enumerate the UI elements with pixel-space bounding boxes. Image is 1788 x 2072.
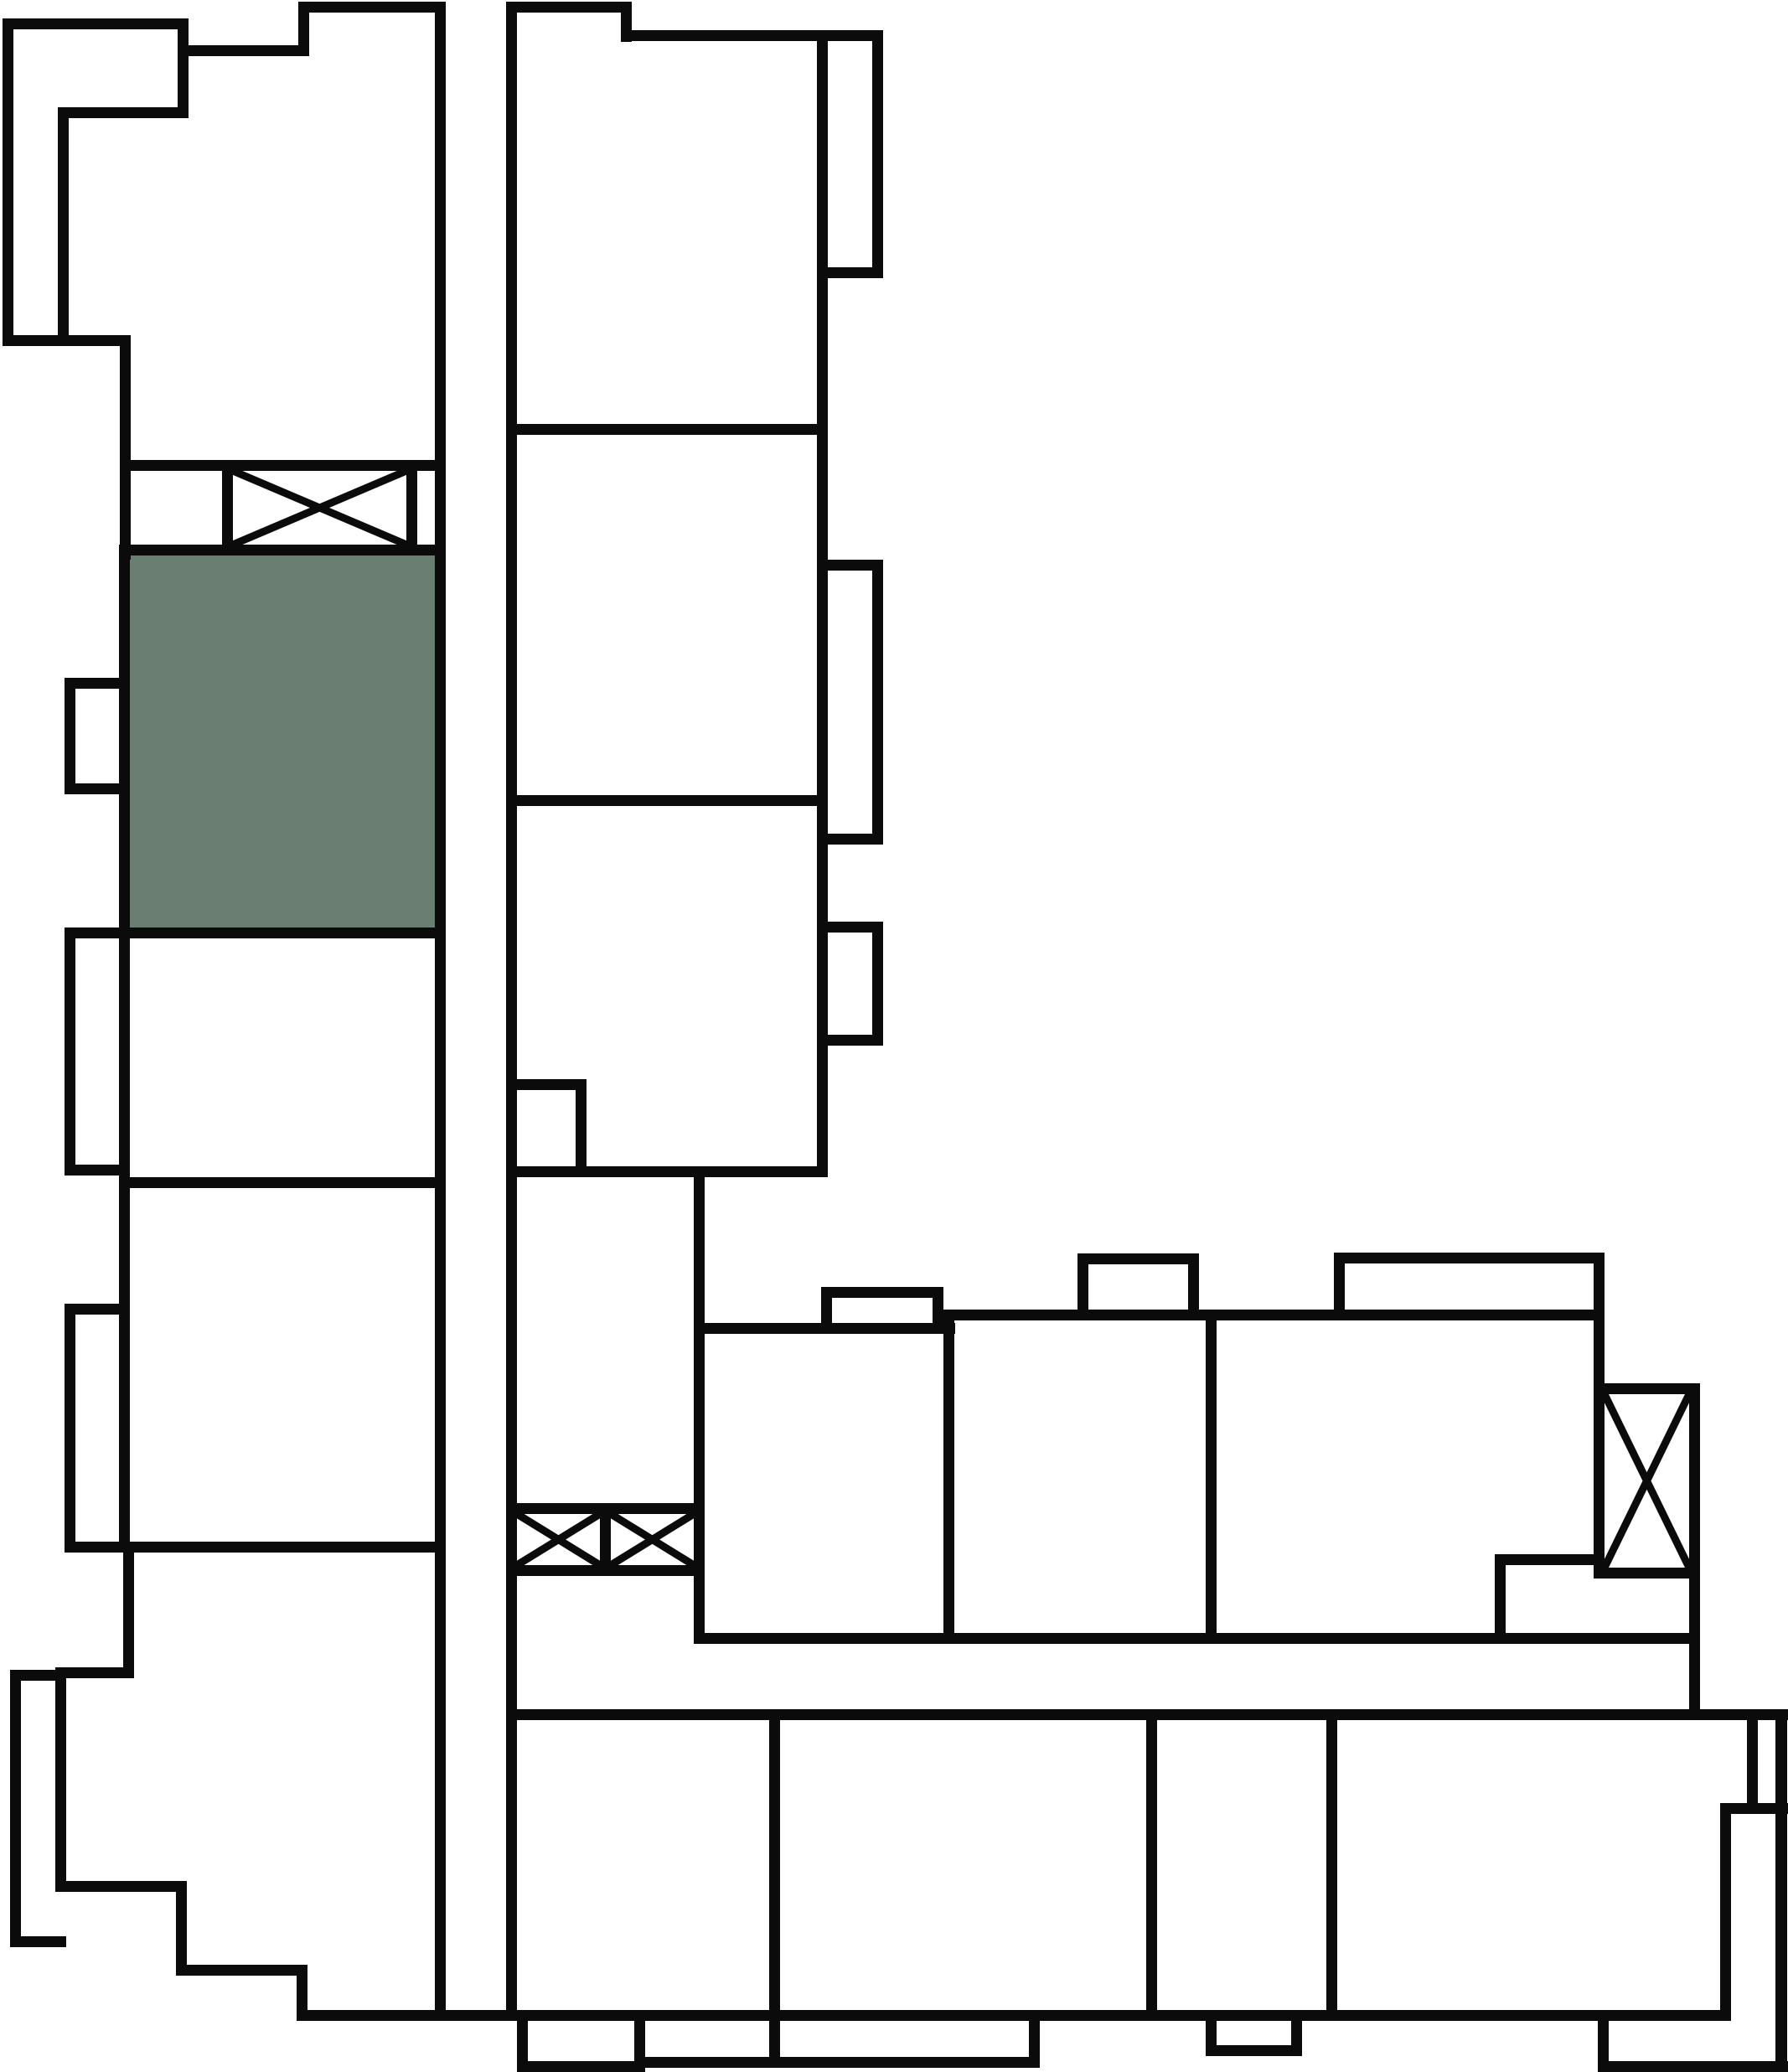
wall-segment	[1594, 1568, 1700, 1579]
wall-segment	[817, 30, 828, 435]
wall-segment	[1206, 1310, 1217, 1644]
wall-segment	[65, 678, 124, 689]
wall-segment	[1291, 2010, 1302, 2056]
wall-segment	[176, 1965, 307, 1976]
wall-segment	[817, 795, 828, 1177]
wall-segment	[119, 1177, 446, 1188]
wall-segment	[506, 2, 627, 13]
wall-segment	[406, 460, 417, 555]
wall-segment	[298, 2, 446, 13]
wall-segment	[576, 1079, 587, 1177]
wall-segment	[65, 1542, 124, 1553]
wall-segment	[634, 2057, 780, 2068]
wall-segment	[1747, 1709, 1758, 1813]
wall-segment	[3, 335, 131, 346]
wall-segment	[1077, 1253, 1199, 1264]
wall-segment	[821, 1287, 832, 1334]
wall-segment	[120, 335, 131, 471]
wall-segment	[1326, 1709, 1337, 2021]
wall-segment	[1334, 1253, 1345, 1320]
wall-segment	[55, 1667, 134, 1678]
wall-segment	[3, 18, 189, 29]
wall-segment	[1689, 1383, 1700, 1720]
wall-segment	[10, 1936, 66, 1947]
wall-segment	[1598, 2010, 1609, 2068]
wall-segment	[119, 1542, 446, 1553]
wall-segment	[933, 1287, 943, 1334]
wall-segment	[178, 18, 189, 118]
wall-segment	[65, 678, 75, 794]
wall-segment	[10, 1670, 66, 1681]
wall-segment	[435, 2, 446, 2021]
wall-segment	[872, 560, 883, 845]
wall-segment	[1598, 2061, 1788, 2072]
wall-segment	[120, 545, 446, 555]
wall-segment	[1495, 1554, 1506, 1644]
wall-segment	[119, 1177, 130, 1553]
wall-segment	[65, 1304, 124, 1315]
wall-segment	[120, 460, 446, 471]
wall-segment	[817, 1035, 883, 1046]
wall-segment	[3, 18, 13, 346]
wall-segment	[55, 1881, 187, 1892]
wall-segment	[506, 2010, 1730, 2021]
wall-segment	[65, 1304, 75, 1553]
wall-segment	[58, 107, 69, 346]
wall-segment	[817, 424, 828, 806]
wall-segment	[55, 1667, 66, 1892]
wall-segment	[1720, 1803, 1731, 2021]
floor-plan-svg	[0, 0, 1788, 2072]
floor-plan-page	[0, 0, 1788, 2072]
wall-segment	[506, 1166, 828, 1177]
wall-segment	[1775, 1709, 1787, 2072]
wall-segment	[1077, 1253, 1088, 1320]
wall-segment	[1334, 1253, 1605, 1263]
wall-segment	[1206, 1310, 1605, 1320]
wall-segment	[1594, 1253, 1605, 1571]
wall-segment	[65, 1165, 124, 1176]
wall-segment	[1594, 1383, 1700, 1394]
wall-segment	[621, 30, 883, 41]
wall-segment	[694, 1633, 1694, 1644]
wall-segment	[769, 1709, 780, 2021]
wall-segment	[58, 107, 189, 118]
wall-segment	[123, 1542, 134, 1678]
highlighted-unit[interactable]	[124, 550, 441, 933]
wall-segment	[506, 424, 828, 435]
wall-segment	[65, 783, 124, 794]
wall-segment	[1188, 1253, 1199, 1320]
wall-segment	[297, 2010, 524, 2021]
wall-segment	[943, 1310, 954, 1644]
wall-segment	[1029, 2010, 1040, 2066]
wall-segment	[1206, 2045, 1302, 2056]
wall-segment	[189, 45, 307, 56]
wall-segment	[1146, 1709, 1157, 2021]
wall-segment	[872, 922, 883, 1046]
wall-segment	[10, 1670, 21, 1947]
plan-background	[0, 0, 1788, 2072]
wall-segment	[176, 1881, 187, 1976]
wall-segment	[506, 795, 828, 806]
wall-segment	[119, 927, 130, 1188]
wall-segment	[821, 1287, 943, 1298]
wall-segment	[517, 2061, 645, 2072]
wall-segment	[1495, 1554, 1605, 1565]
wall-segment	[65, 927, 75, 1176]
wall-segment	[119, 545, 130, 938]
wall-segment	[817, 267, 883, 278]
wall-segment	[872, 30, 883, 278]
wall-segment	[506, 1079, 587, 1090]
wall-segment	[222, 460, 233, 555]
wall-segment	[600, 1503, 611, 1576]
wall-segment	[769, 2057, 1040, 2068]
